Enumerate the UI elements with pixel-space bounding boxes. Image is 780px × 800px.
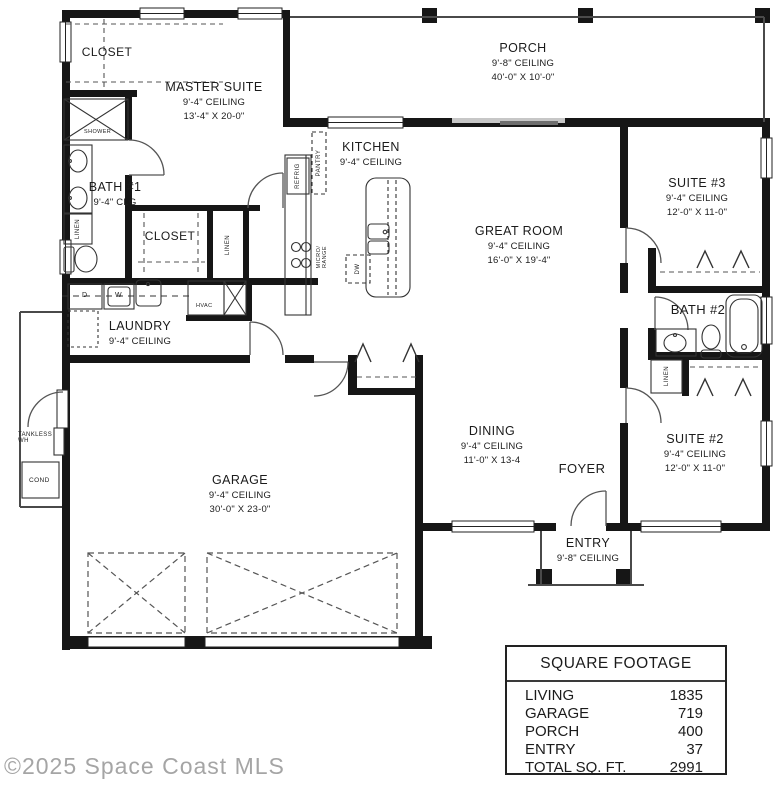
room-label-porch: PORCH 9'-8" CEILING 40'-0" X 10'-0": [491, 41, 554, 83]
room-label-laundry: LAUNDRY 9'-4" CEILING: [109, 319, 171, 347]
pantry-label: PANTRY: [316, 150, 322, 177]
window: [641, 521, 721, 532]
door-leaf: [57, 390, 68, 428]
linen-label: LINEN: [664, 366, 670, 386]
micro-range-label: MICRO/ RANGE: [316, 246, 328, 269]
door-arc: [248, 173, 283, 208]
room-label-closet-hall: CLOSET: [145, 229, 195, 243]
dishwasher-label: DW: [355, 264, 361, 275]
door-arc: [250, 322, 283, 355]
room-label-suite2: SUITE #2 9'-4" CEILING 12'-0" X 11-0": [664, 432, 726, 474]
hvac-label: HVAC: [196, 303, 212, 309]
room-label-entry: ENTRY 9'-8" CEILING: [557, 536, 619, 564]
door-arc: [129, 140, 164, 175]
table-row: LIVING 1835: [507, 687, 725, 705]
hvac-unit: [188, 281, 246, 315]
bathtub: [726, 295, 762, 357]
garage-door-opening: [205, 637, 399, 647]
window: [761, 297, 772, 344]
kitchen-sink: [368, 224, 389, 254]
table-row: TOTAL SQ. FT. 2991: [507, 759, 725, 777]
kitchen-island: [366, 178, 410, 297]
room-label-closet-master: CLOSET: [82, 45, 132, 59]
window: [238, 8, 282, 19]
room-label-great-room: GREAT ROOM 9'-4" CEILING 16'-0" X 19'-4": [475, 224, 563, 266]
floor-plan: CLOSET MASTER SUITE 9'-4" CEILING 13'-4"…: [0, 0, 780, 800]
tankless-water-heater: [54, 428, 64, 455]
table-rows: LIVING 1835 GARAGE 719 PORCH 400 ENTRY 3…: [507, 682, 725, 777]
room-label-bath2: BATH #2: [671, 302, 726, 317]
window: [761, 138, 772, 178]
room-label-suite3: SUITE #3 9'-4" CEILING 12'-0" X 11-0": [666, 176, 728, 218]
shower-label: SHOWER: [84, 129, 111, 135]
door-arc: [571, 491, 606, 526]
bifold-doors: [355, 251, 751, 396]
washer-label: W: [115, 292, 122, 299]
linen-label: LINEN: [225, 235, 231, 255]
room-label-foyer: FOYER: [559, 461, 606, 476]
door-arc: [314, 362, 348, 396]
linen-label: LINEN: [75, 219, 81, 239]
table-row: GARAGE 719: [507, 705, 725, 723]
room-label-bath1: BATH #1 9'-4" CLG: [89, 180, 142, 208]
tankless-wh-label: TANKLESS WH: [18, 432, 52, 444]
square-footage-table: SQUARE FOOTAGE LIVING 1835 GARAGE 719 PO…: [505, 645, 727, 775]
window: [60, 240, 71, 274]
room-label-dining: DINING 9'-4" CEILING 11'-0" X 13-4: [461, 424, 523, 466]
garage-door-panels: [88, 553, 397, 633]
room-label-kitchen: KITCHEN 9'-4" CEILING: [340, 140, 402, 168]
room-label-master-suite: MASTER SUITE 9'-4" CEILING 13'-4" X 20-0…: [165, 80, 262, 122]
window: [761, 421, 772, 466]
refrig-label: REFRIG: [295, 163, 301, 189]
cooktop-range: [292, 243, 311, 268]
window: [140, 8, 184, 19]
room-label-garage: GARAGE 9'-4" CEILING 30'-0" X 23-0": [209, 473, 271, 515]
garage-door-opening: [88, 637, 185, 647]
dryer-label: D: [82, 292, 87, 299]
table-row: ENTRY 37: [507, 741, 725, 759]
window: [60, 22, 71, 62]
mls-watermark: ©2025 Space Coast MLS: [4, 753, 285, 780]
window: [328, 117, 403, 128]
table-row: PORCH 400: [507, 723, 725, 741]
bath2-vanity: [656, 329, 696, 356]
window: [452, 521, 534, 532]
table-title: SQUARE FOOTAGE: [507, 647, 725, 673]
cond-label: COND: [29, 477, 50, 484]
